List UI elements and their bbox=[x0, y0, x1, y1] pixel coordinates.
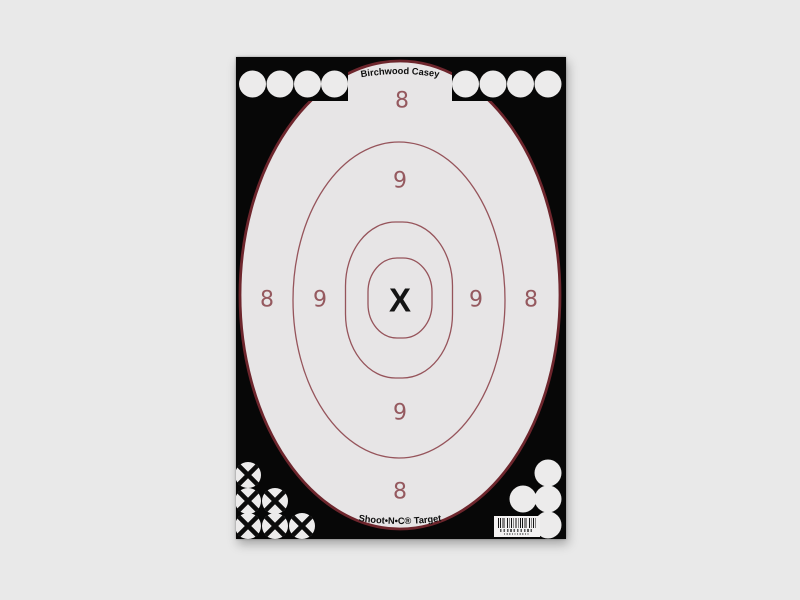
score-8-left: 8 bbox=[260, 288, 274, 313]
score-9-top: 9 bbox=[393, 169, 407, 194]
barcode-digits bbox=[500, 529, 534, 532]
score-9-left: 9 bbox=[313, 288, 327, 313]
barcode-bars bbox=[498, 518, 536, 528]
shooting-target: Birchwood Casey Shoot•N•C® Target 8 9 8 … bbox=[236, 57, 566, 539]
paster-circle bbox=[239, 71, 266, 98]
crossed-paster bbox=[236, 488, 261, 514]
paster-circle bbox=[321, 71, 348, 98]
score-9-right: 9 bbox=[469, 288, 483, 313]
score-8-right: 8 bbox=[524, 288, 538, 313]
paster-circle bbox=[480, 71, 507, 98]
score-8-bottom: 8 bbox=[393, 480, 407, 505]
paster-circle bbox=[452, 71, 479, 98]
crossed-paster bbox=[289, 513, 315, 539]
crossed-paster bbox=[236, 462, 261, 488]
paster-circle bbox=[535, 460, 562, 487]
product-photo-background: Birchwood Casey Shoot•N•C® Target 8 9 8 … bbox=[0, 0, 800, 600]
score-8-top: 8 bbox=[395, 89, 409, 114]
barcode-subtext bbox=[504, 533, 530, 535]
paster-circle bbox=[510, 486, 537, 513]
paster-circle bbox=[535, 71, 562, 98]
target-graphic: Birchwood Casey Shoot•N•C® Target 8 9 8 … bbox=[236, 57, 566, 539]
crossed-paster bbox=[236, 513, 261, 539]
crossed-paster bbox=[262, 513, 288, 539]
barcode bbox=[494, 516, 540, 537]
center-x-marker: X bbox=[389, 282, 411, 319]
paster-circle bbox=[294, 71, 321, 98]
score-9-bottom: 9 bbox=[393, 401, 407, 426]
crossed-paster bbox=[262, 488, 288, 514]
paster-circle bbox=[535, 486, 562, 513]
paster-circle bbox=[267, 71, 294, 98]
paster-circle bbox=[507, 71, 534, 98]
